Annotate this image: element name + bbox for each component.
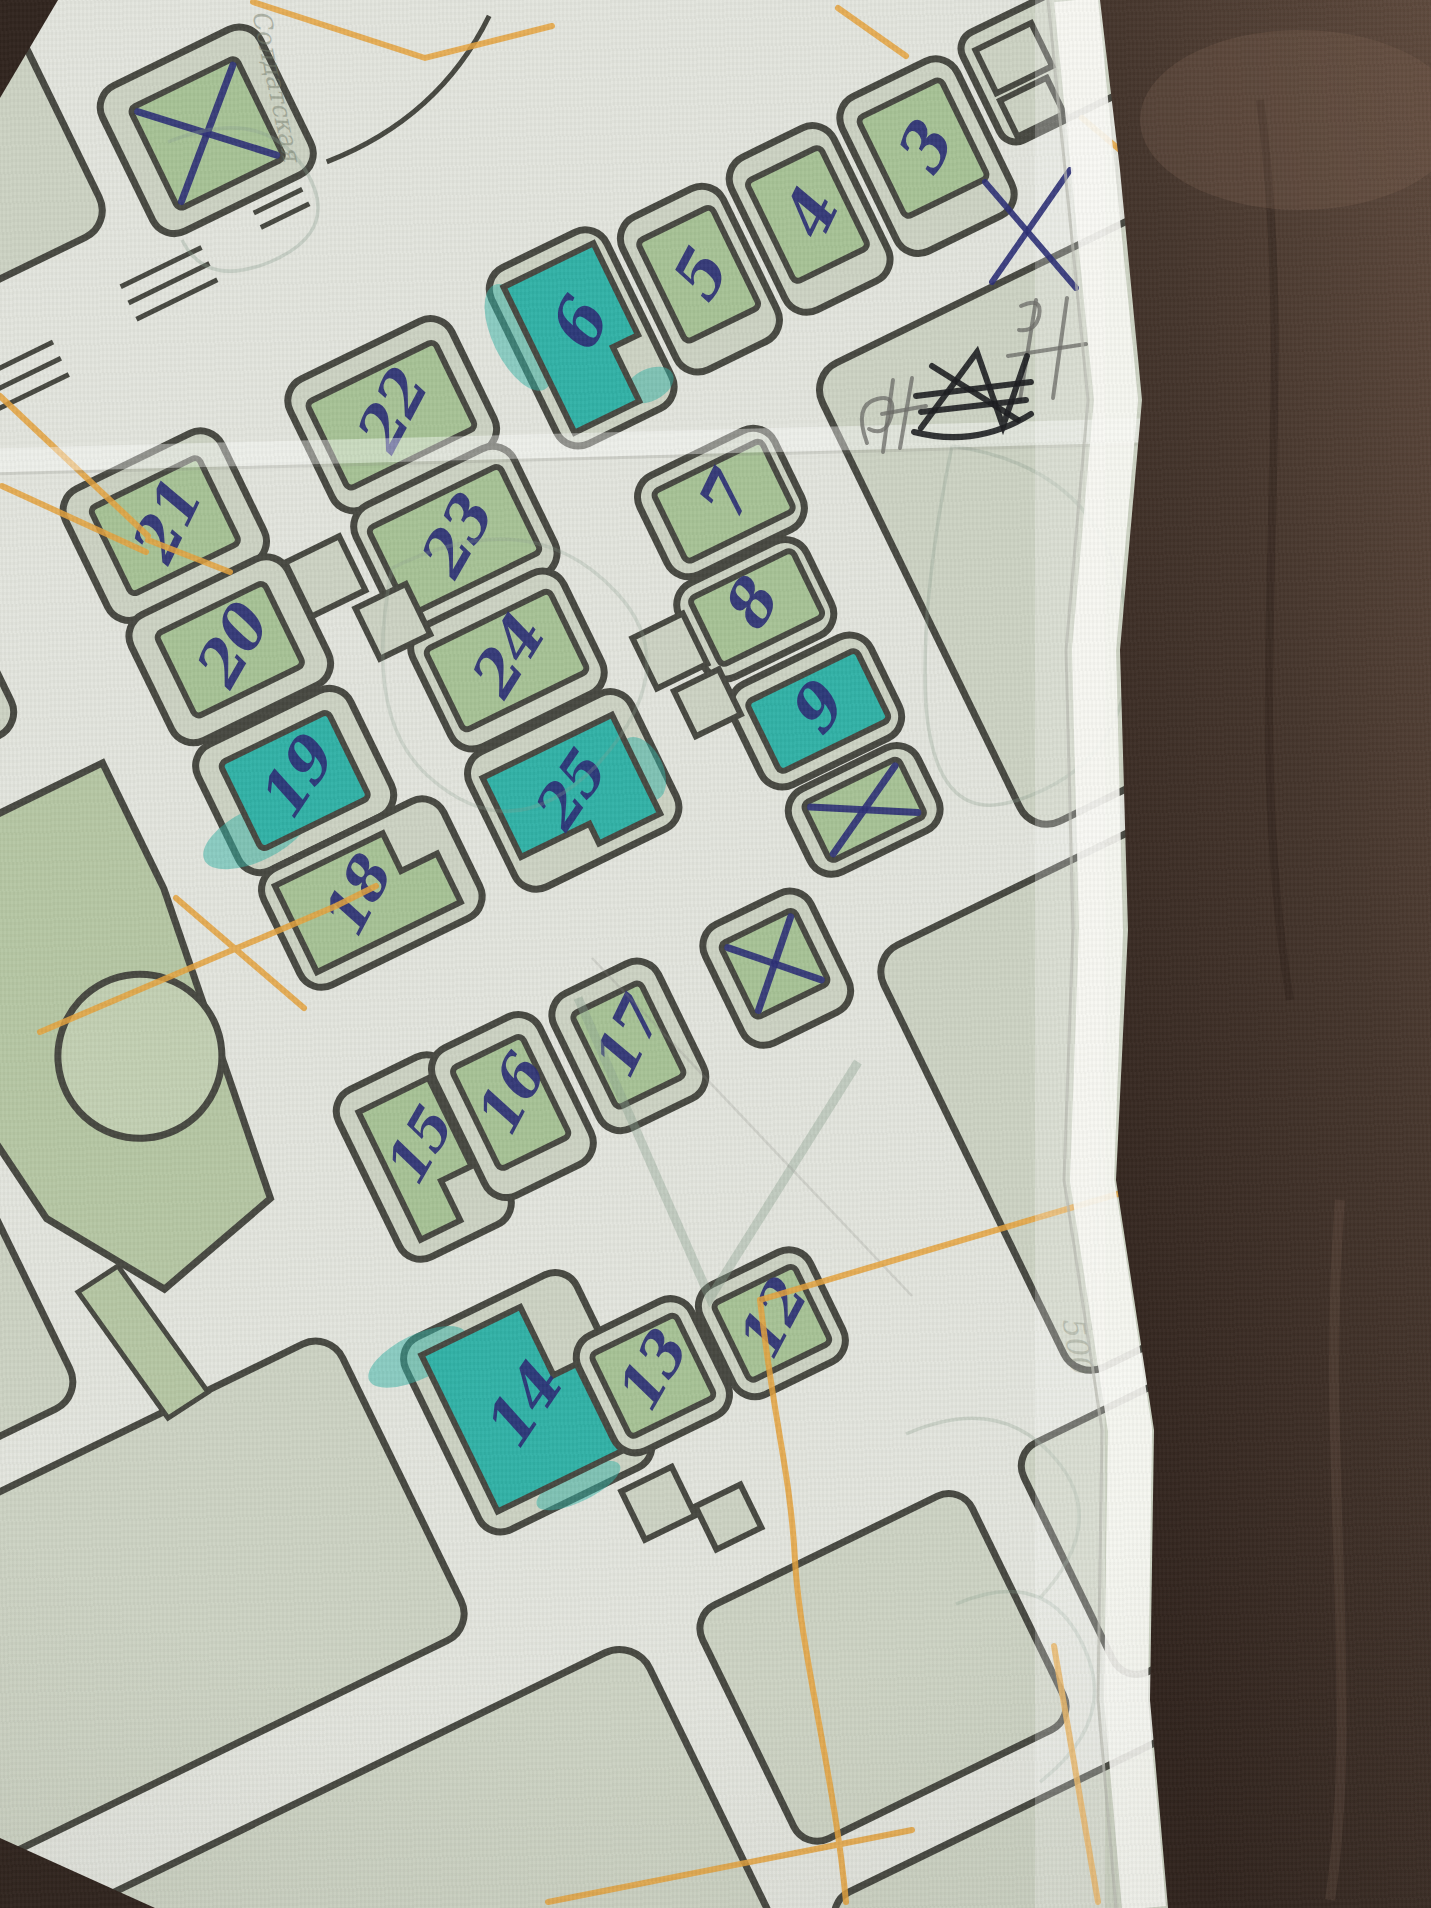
photo-of-annotated-paper-map: 21222023192418256543789151617141312 Солд…: [0, 0, 1431, 1908]
map-scene: 21222023192418256543789151617141312 Солд…: [0, 0, 1431, 1908]
